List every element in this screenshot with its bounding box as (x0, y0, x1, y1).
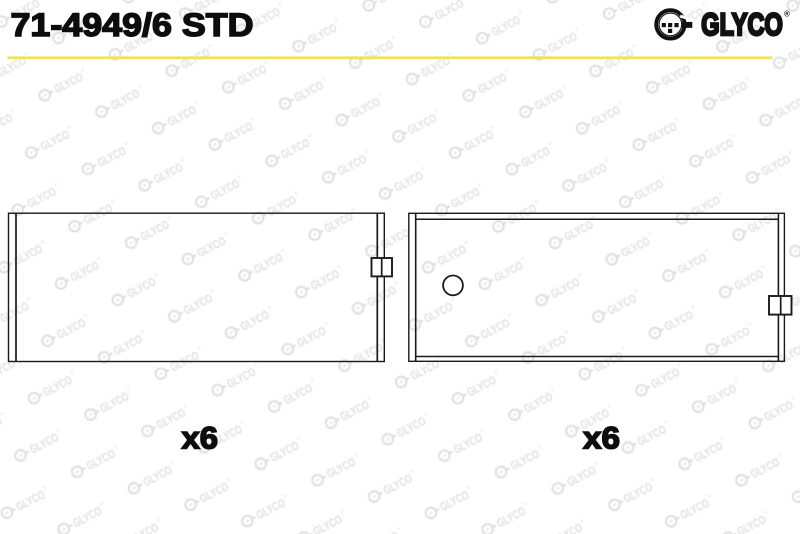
svg-text:x6: x6 (583, 419, 620, 455)
svg-text:x6: x6 (182, 419, 219, 455)
svg-text:GLYCO: GLYCO (701, 6, 783, 42)
svg-text:71-4949/6 STD: 71-4949/6 STD (11, 7, 254, 43)
svg-text:®: ® (784, 10, 790, 19)
